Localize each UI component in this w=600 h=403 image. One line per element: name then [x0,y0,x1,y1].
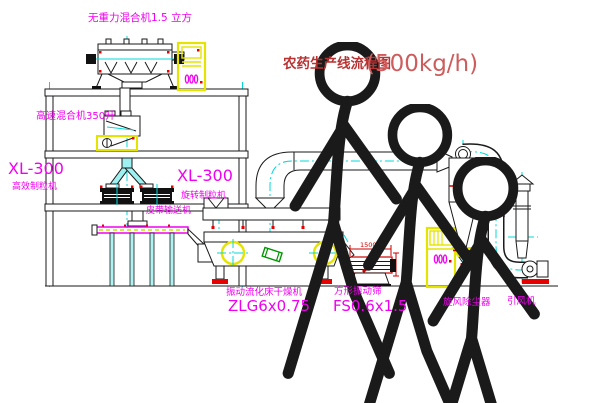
label-screen-model: FS0.6x1.5 [333,297,407,315]
label-granulator-left-name: 高效制粒机 [12,180,57,192]
label-cyclone: 旋风除尘器 [443,296,491,308]
label-dryer-model: ZLG6x0.75 [228,297,310,315]
title: 农药生产线流程图 (500kg/h) [282,51,478,77]
bearing-left [86,54,96,64]
label-belt-conveyor: 皮带输送机 [146,204,191,216]
hood-mounts [212,220,335,229]
granulator-left [100,184,134,205]
gravity-free-mixer [86,39,184,89]
page-title-capacity: (500kg/h) [366,51,478,77]
floor-slab-1 [45,89,248,96]
cabinet-symbol [434,255,451,263]
discharge-box [122,82,142,88]
floor-slab-2 [45,151,248,158]
conveyor-legs [110,233,174,286]
label-granulator-left-model: XL-300 [8,159,64,178]
control-cabinet-upper [178,43,205,90]
dryer-hood [203,208,340,220]
label-gravity-mixer: 无重力混合机1.5 立方 [88,11,192,24]
induced-draft-fan [522,261,549,284]
cad-flow-diagram: 1500 [0,0,600,403]
label-fan: 引风机 [507,295,536,307]
cabinet-symbol [185,75,202,84]
label-granulator-right-name: 旋转制粒机 [181,189,226,201]
diagram-svg: 1500 [0,0,600,403]
label-high-speed-mixer: 高速混合机350升 [36,109,115,122]
people [288,45,600,403]
drop-chute [132,211,143,222]
belt-conveyor [92,211,206,286]
label-screen-name: 方形振动筛 [334,285,382,297]
y-duct [106,158,153,188]
label-granulator-right-model: XL-300 [177,166,233,185]
